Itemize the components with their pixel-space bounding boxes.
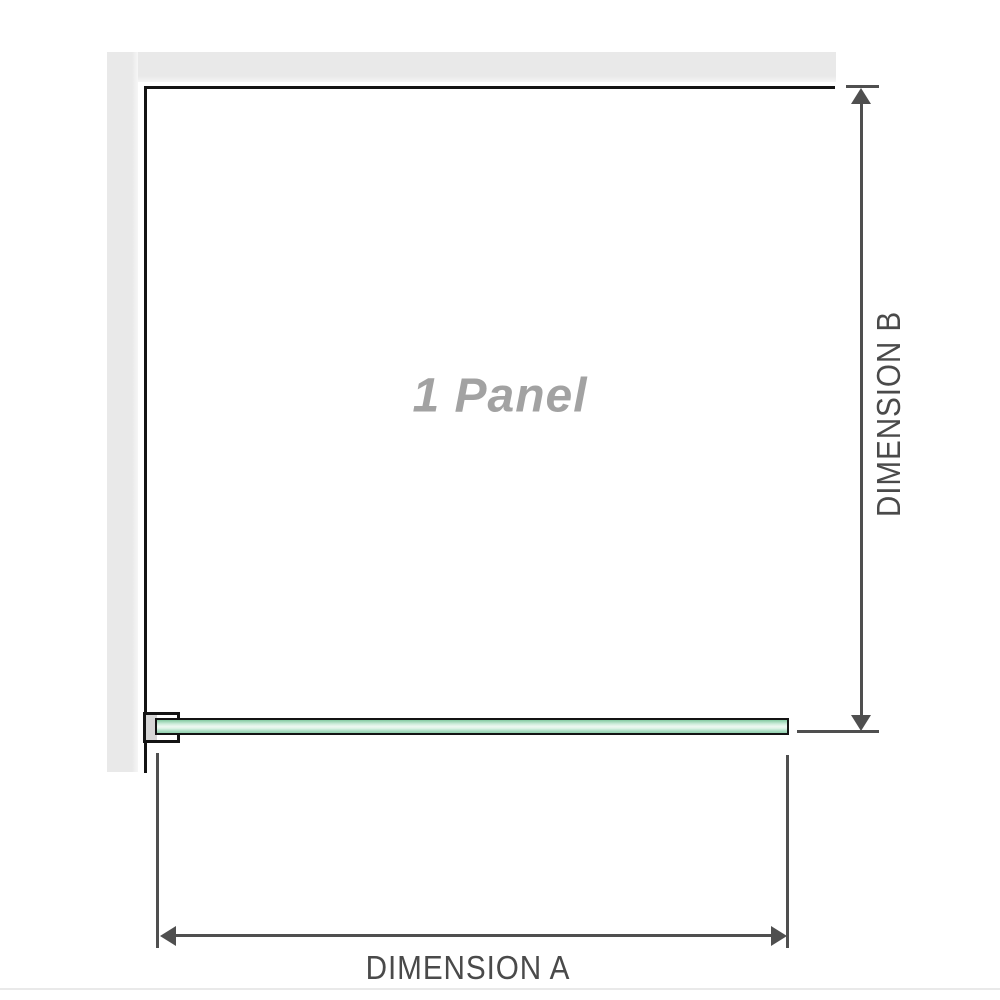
wall-inner-edge-top <box>144 86 835 89</box>
arrow-down-icon <box>851 715 871 731</box>
wall-inner-edge-left <box>144 86 147 773</box>
dimension-a-label: DIMENSION A <box>366 949 571 987</box>
arrow-left-icon <box>160 926 176 946</box>
dimension-b-line <box>860 102 863 717</box>
bottom-divider <box>0 988 1000 990</box>
dimension-a-line <box>173 934 773 937</box>
arrow-up-icon <box>851 88 871 104</box>
dimension-b-label: DIMENSION B <box>870 311 908 517</box>
wall-left <box>107 52 138 772</box>
dimension-a-extension-left <box>156 753 159 948</box>
wall-top <box>107 52 836 82</box>
shower-panel-dimension-diagram: 1 Panel DIMENSION B DIMENSION A <box>0 0 1000 1000</box>
panel-count-label: 1 Panel <box>412 369 587 424</box>
dimension-a-extension-right <box>786 755 789 948</box>
glass-panel <box>155 718 789 735</box>
arrow-right-icon <box>771 926 787 946</box>
